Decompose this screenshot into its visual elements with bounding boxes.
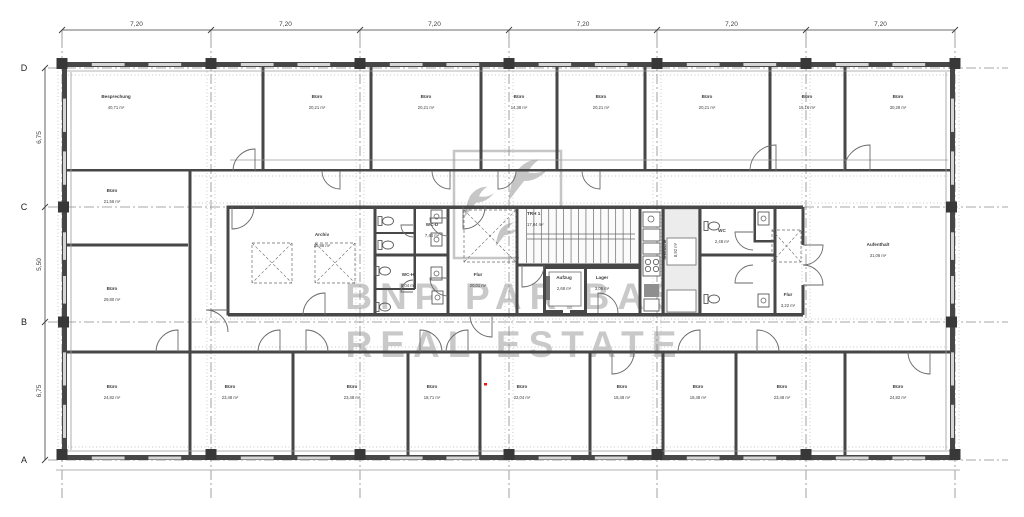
room-area: 29,80 m²: [104, 297, 121, 302]
room-name: Büro: [225, 384, 236, 389]
room-name: Büro: [802, 94, 813, 99]
facade-column: [355, 449, 366, 460]
door-arc: [306, 330, 328, 352]
room-name: WC: [718, 228, 726, 233]
stair: [519, 209, 638, 263]
wall: [570, 310, 587, 313]
sink-icon: [758, 294, 769, 307]
room-label: Büro15,16 m²: [799, 94, 816, 110]
wall: [639, 207, 642, 315]
room-name: Büro: [312, 94, 323, 99]
wall: [774, 207, 777, 315]
toilet-icon: [704, 295, 708, 304]
room-label: Büro30,28 m²: [890, 94, 907, 110]
wall: [407, 354, 410, 456]
room-label: Archiv35,86 m²: [314, 232, 331, 248]
door-arc: [750, 145, 776, 171]
wall: [67, 169, 955, 172]
room-area: 23,48 m²: [222, 395, 239, 400]
facade-column: [801, 449, 812, 460]
door-arc: [908, 352, 930, 374]
room-label: Büro20,21 m²: [418, 94, 435, 110]
toilet-icon: [383, 217, 394, 225]
facade-column: [58, 202, 69, 213]
room-name: Aufenthalt: [867, 242, 890, 247]
room-name: Besprechung: [101, 94, 131, 99]
room-name: Flur: [784, 292, 793, 297]
window: [148, 63, 181, 66]
window: [63, 151, 66, 184]
room-name: Büro: [693, 384, 704, 389]
wall: [189, 171, 192, 455]
room-area: 23,48 m²: [344, 395, 361, 400]
window: [951, 99, 954, 132]
grid-row-label: C: [21, 202, 28, 212]
room-area: 2,48 m²: [715, 239, 730, 244]
facade-column: [57, 449, 68, 460]
window: [390, 457, 423, 460]
room-label: Büro20,21 m²: [593, 94, 610, 110]
wall: [700, 254, 775, 257]
wall: [262, 67, 265, 171]
window: [951, 151, 954, 184]
facade-column: [206, 449, 217, 460]
room-area: 31,06 m²: [870, 253, 887, 258]
facade-column: [946, 202, 957, 213]
window: [241, 457, 274, 460]
window: [743, 457, 776, 460]
wall: [584, 266, 587, 313]
sink-icon: [758, 212, 769, 225]
dimension-value: 7,20: [725, 21, 738, 28]
window: [836, 457, 869, 460]
wall: [735, 354, 738, 456]
room-label: WC2,48 m²: [715, 228, 730, 244]
room-area: 18,48 m²: [614, 395, 631, 400]
room-area: 22,04 m²: [514, 395, 531, 400]
window: [297, 457, 330, 460]
kitchen-unit: [643, 243, 660, 254]
window: [92, 63, 125, 66]
door-arc: [735, 265, 753, 283]
window: [63, 276, 66, 304]
door-arc: [156, 330, 178, 352]
room-name: Büro: [596, 94, 607, 99]
window: [241, 63, 274, 66]
room-area: 17,04 m²: [527, 222, 544, 227]
window: [951, 232, 954, 260]
watermark-line1: BNP PARIBAS: [345, 276, 685, 317]
room-label: Büro18,48 m²: [614, 384, 631, 400]
room-label: Büro24,82 m²: [104, 384, 121, 400]
kitchen-unit: [643, 212, 660, 227]
window: [951, 352, 954, 385]
window: [687, 63, 720, 66]
room-name: Büro: [617, 384, 628, 389]
room-name: Büro: [702, 94, 713, 99]
room-label: Büro29,80 m²: [104, 286, 121, 302]
floor-plan-canvas: BNP PARIBASREAL ESTATEBesprechung40,71 m…: [0, 0, 1024, 517]
room-label: Büro23,48 m²: [344, 384, 361, 400]
wall: [374, 207, 377, 315]
shaft-symbol: [252, 243, 292, 283]
room-area: 20,21 m²: [309, 105, 326, 110]
dimension-value: 7,20: [279, 21, 292, 28]
raster-dotted-layer: [58, 68, 959, 452]
watermark-line2: REAL ESTATE: [346, 324, 685, 365]
wall: [844, 354, 847, 456]
room-area: 40,71 m²: [108, 105, 125, 110]
door-arc: [258, 330, 280, 352]
room-name: WC-D: [426, 222, 439, 227]
toilet-icon: [380, 267, 391, 275]
wall: [543, 266, 546, 313]
facade-column: [946, 317, 957, 328]
window: [595, 457, 628, 460]
window: [390, 63, 423, 66]
window: [446, 63, 479, 66]
wall: [699, 207, 702, 315]
wall: [479, 354, 482, 456]
facade-column: [950, 449, 961, 460]
door-arc: [322, 171, 340, 189]
dimension-value: 6,75: [36, 384, 43, 397]
room-area: 20,01 m²: [470, 283, 487, 288]
facade-column: [206, 58, 217, 69]
room-label: Büro18,71 m²: [424, 384, 441, 400]
wall: [447, 207, 450, 315]
room-area: 14,38 m²: [511, 105, 528, 110]
wall: [844, 67, 847, 171]
facade-column: [355, 58, 366, 69]
wall: [480, 67, 483, 171]
room-label: Büro14,38 m²: [511, 94, 528, 110]
room-name: Teeküche: [662, 239, 667, 260]
window: [892, 457, 925, 460]
door-arc: [582, 171, 600, 189]
grid-row-label: B: [21, 317, 27, 327]
elevator-rail: [546, 276, 550, 300]
wall: [802, 207, 805, 245]
toilet-icon: [383, 241, 394, 249]
shaft-diagonal: [252, 243, 292, 283]
toilet-icon: [709, 295, 720, 303]
wall: [802, 285, 805, 315]
grid-row-label: D: [21, 63, 28, 73]
room-area: 23,48 m²: [774, 395, 791, 400]
room-name: Büro: [893, 384, 904, 389]
facade-column: [504, 449, 515, 460]
window: [297, 63, 330, 66]
wall: [375, 254, 448, 257]
wall: [67, 351, 955, 354]
dimension-value: 5,50: [36, 258, 43, 271]
wall: [754, 207, 757, 242]
room-name: TRH 1: [527, 211, 541, 216]
facade-column: [950, 58, 961, 69]
room-name: Büro: [421, 94, 432, 99]
appliance-icon: [644, 284, 659, 297]
room-label: Büro23,48 m²: [774, 384, 791, 400]
room-name: Aufzug: [556, 275, 572, 280]
dimension-layer: 7,207,207,207,207,207,206,755,506,75DCBA: [21, 21, 958, 465]
window: [63, 405, 66, 438]
window: [63, 99, 66, 132]
room-name: Büro: [427, 384, 438, 389]
room-area: 20,21 m²: [699, 105, 716, 110]
door-arc: [757, 330, 779, 352]
window: [595, 63, 628, 66]
room-name: WC-H: [402, 272, 415, 277]
room-area: 3,22 m²: [781, 303, 796, 308]
window: [951, 276, 954, 304]
window: [687, 457, 720, 460]
facade-column: [652, 58, 663, 69]
grid-axes-layer: [48, 38, 1008, 500]
dimension-value: 7,20: [130, 21, 143, 28]
window: [63, 232, 66, 260]
room-name: Archiv: [315, 232, 330, 237]
room-area: 8,92 m²: [673, 242, 678, 257]
room-label: Büro20,21 m²: [699, 94, 716, 110]
facade-column: [801, 58, 812, 69]
wall: [375, 288, 415, 290]
window: [951, 405, 954, 438]
room-label: Büro21,56 m²: [104, 188, 121, 204]
wall: [67, 244, 188, 247]
room-area: 18,48 m²: [690, 395, 707, 400]
wall: [543, 310, 563, 313]
kitchen-unit: [643, 256, 660, 276]
swallow-icon: [501, 157, 554, 201]
toilet-icon: [704, 222, 708, 231]
door-arc: [232, 207, 254, 229]
door-arc: [844, 145, 870, 171]
wall: [769, 67, 772, 171]
room-name: Büro: [517, 384, 528, 389]
window: [836, 63, 869, 66]
wall: [543, 266, 641, 269]
room-name: Büro: [893, 94, 904, 99]
wall: [662, 354, 665, 456]
room-label: Büro20,21 m²: [309, 94, 326, 110]
door-arc: [401, 225, 413, 237]
swallow-icon: [459, 185, 498, 217]
room-label: WC-D7,44 m²: [425, 222, 440, 238]
window: [539, 63, 572, 66]
wall: [292, 354, 295, 456]
window: [63, 352, 66, 385]
room-name: Büro: [347, 384, 358, 389]
room-area: 20,21 m²: [593, 105, 610, 110]
room-name: Büro: [107, 286, 118, 291]
service-box: [667, 238, 696, 265]
room-name: Büro: [777, 384, 788, 389]
dimension-value: 7,20: [428, 21, 441, 28]
room-area: 21,56 m²: [104, 199, 121, 204]
window: [92, 457, 125, 460]
room-area: 35,86 m²: [314, 243, 331, 248]
wall: [227, 206, 230, 316]
annotations: [484, 383, 487, 386]
kitchen-unit: [643, 229, 660, 241]
door-arc: [735, 232, 753, 250]
room-area: 8,04 m²: [401, 283, 416, 288]
room-label: Büro18,48 m²: [690, 384, 707, 400]
wall: [370, 67, 373, 171]
door-arc: [432, 171, 450, 189]
room-area: 15,16 m²: [799, 105, 816, 110]
wall: [375, 232, 415, 234]
door-arc: [206, 310, 228, 332]
grid-row-label: A: [21, 455, 27, 465]
room-area: 2,68 m²: [557, 286, 572, 291]
window: [148, 457, 181, 460]
room-label: Büro22,04 m²: [514, 384, 531, 400]
room-area: 7,44 m²: [425, 233, 440, 238]
room-area: 18,71 m²: [424, 395, 441, 400]
facade-column: [652, 449, 663, 460]
wall: [644, 67, 647, 171]
room-label: Aufenthalt31,06 m²: [867, 242, 890, 258]
facade-column: [504, 58, 515, 69]
shaft-diagonal: [252, 243, 292, 283]
room-area: 3,08 m²: [595, 286, 610, 291]
room-area: 20,21 m²: [418, 105, 435, 110]
kitchen-unit: [644, 299, 659, 311]
window: [446, 457, 479, 460]
room-label: Besprechung40,71 m²: [101, 94, 131, 110]
room-name: Büro: [107, 188, 118, 193]
room-name: Büro: [107, 384, 118, 389]
room-name: Lager: [596, 275, 609, 280]
room-name: Flur: [474, 272, 483, 277]
window: [892, 63, 925, 66]
wall: [556, 67, 559, 171]
window: [743, 63, 776, 66]
window: [539, 457, 572, 460]
room-area: 24,82 m²: [890, 395, 907, 400]
toilet-icon: [378, 241, 382, 250]
revision-mark: [484, 383, 487, 386]
facade-column: [58, 317, 69, 328]
room-name: Büro: [514, 94, 525, 99]
room-label: Büro23,48 m²: [222, 384, 239, 400]
service-box: [667, 290, 696, 312]
dimension-value: 6,75: [36, 131, 43, 144]
wall: [414, 207, 417, 255]
room-area: 24,82 m²: [104, 395, 121, 400]
room-area: 30,28 m²: [890, 105, 907, 110]
toilet-icon: [378, 217, 382, 226]
room-label: Flur3,22 m²: [781, 292, 796, 308]
wall: [589, 354, 592, 456]
facade-column: [57, 58, 68, 69]
walls-layer: [56, 62, 960, 470]
room-label: Büro24,82 m²: [890, 384, 907, 400]
dimension-value: 7,20: [577, 21, 590, 28]
dimension-value: 7,20: [874, 21, 887, 28]
floor-plan-page: BNP PARIBASREAL ESTATEBesprechung40,71 m…: [0, 0, 1024, 517]
door-arc: [303, 293, 325, 315]
